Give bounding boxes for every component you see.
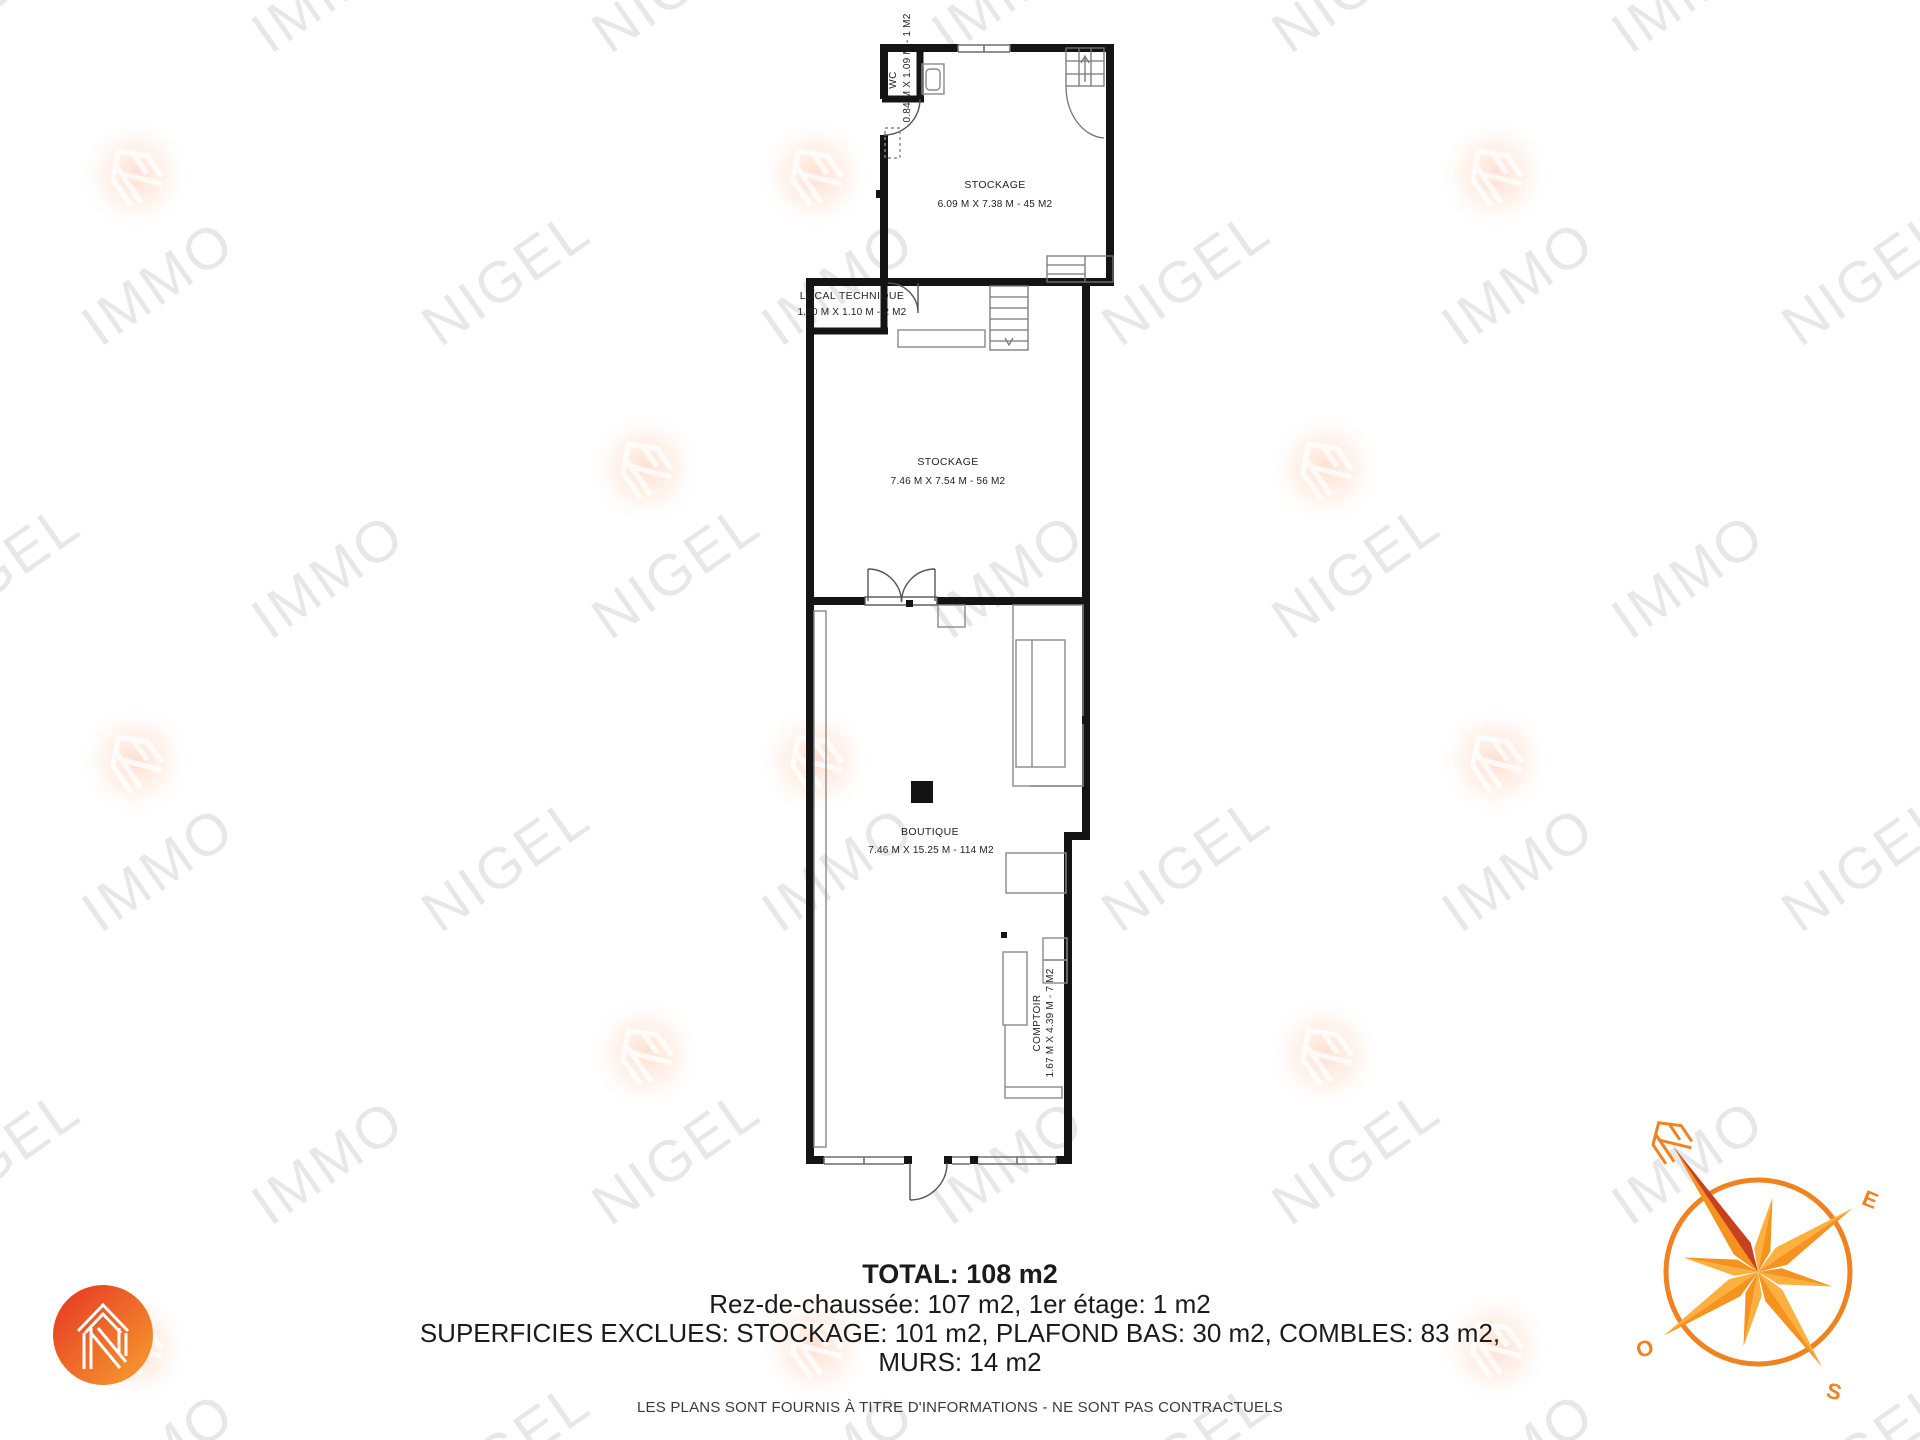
disclaimer-text: LES PLANS SONT FOURNIS À TITRE D'INFORMA…	[0, 1399, 1920, 1416]
compass-north-logo-icon	[1645, 1113, 1696, 1166]
compass-rose: E O S	[0, 0, 1920, 1440]
floor-areas: Rez-de-chaussée: 107 m2, 1er étage: 1 m2	[0, 1290, 1920, 1319]
compass-east-label: E	[1859, 1185, 1882, 1214]
excluded-areas-line2: MURS: 14 m2	[0, 1348, 1920, 1377]
agency-logo	[0, 0, 220, 1440]
total-area: TOTAL: 108 m2	[0, 1260, 1920, 1289]
excluded-areas-line1: SUPERFICIES EXCLUES: STOCKAGE: 101 m2, P…	[0, 1319, 1920, 1348]
area-summary: TOTAL: 108 m2 Rez-de-chaussée: 107 m2, 1…	[0, 1260, 1920, 1377]
floorplan-page: NIGELIMMONIGELIMMONIGELIMMONIGELIMMONIGE…	[0, 0, 1920, 1440]
